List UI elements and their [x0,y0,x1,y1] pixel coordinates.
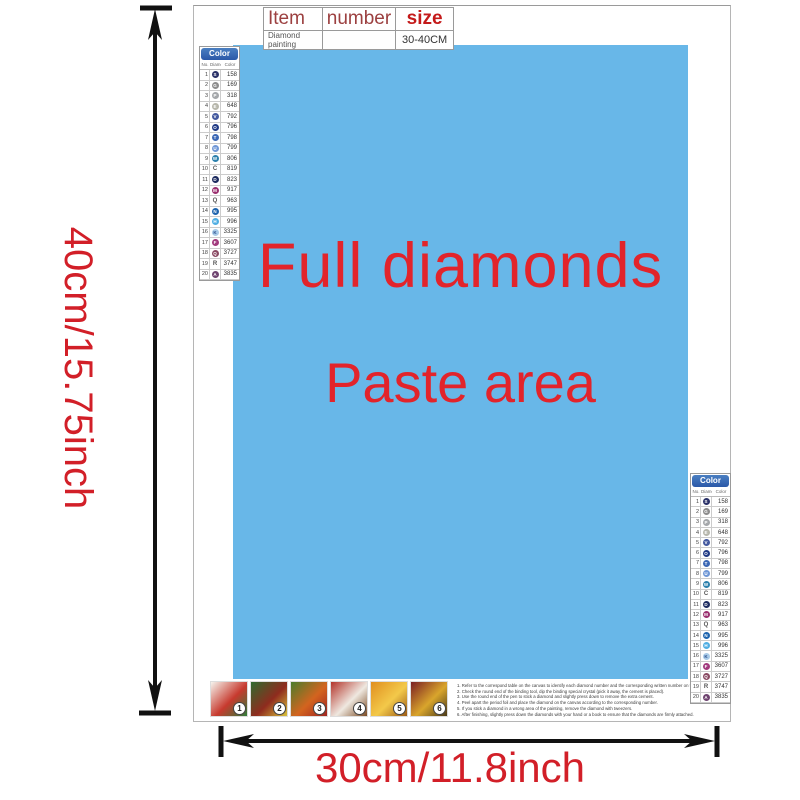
vertical-arrow [139,8,172,713]
diamond-painting-product-diagram: Full diamonds Paste area Item number siz… [0,0,800,800]
dimension-arrows [0,0,800,800]
horizontal-arrow [221,726,717,757]
